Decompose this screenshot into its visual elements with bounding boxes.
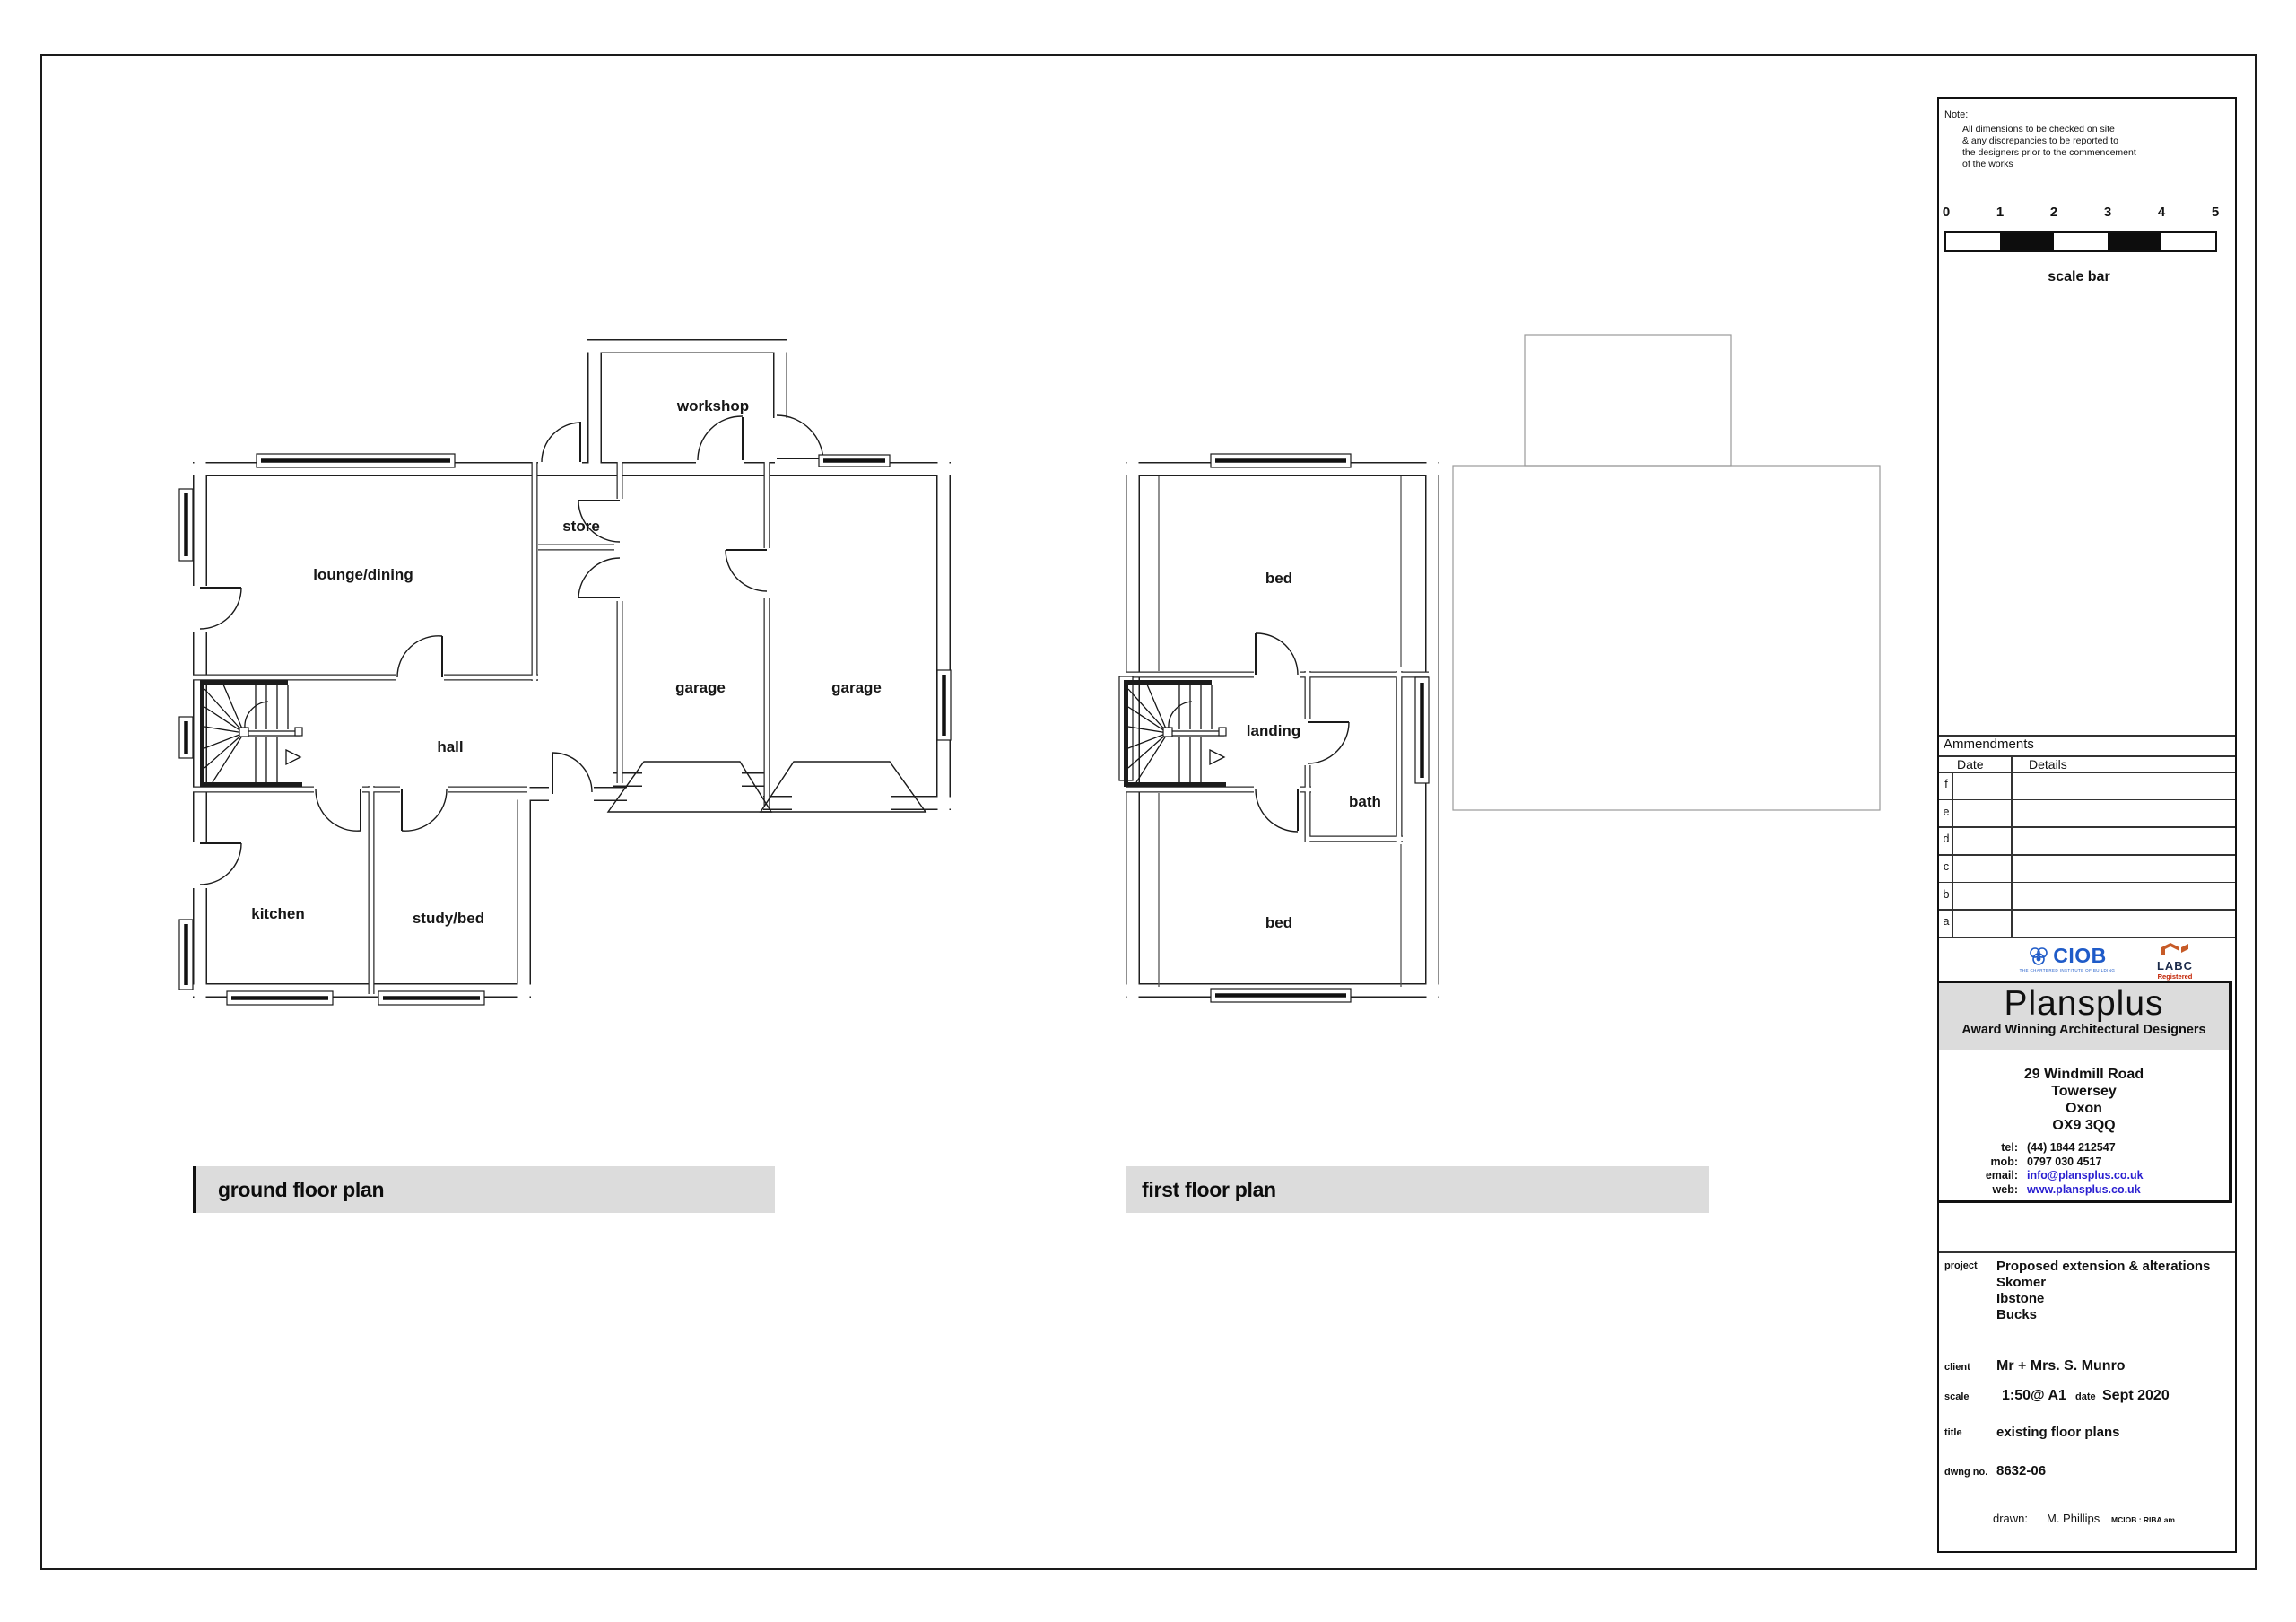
dwg-no-label: dwng no.	[1944, 1467, 1987, 1478]
drawn-credentials: MCIOB : RIBA am	[2111, 1515, 2175, 1524]
amendment-row-letter: a	[1941, 915, 1952, 928]
room-label-hall: hall	[437, 738, 463, 755]
company-address: 29 Windmill Road Towersey Oxon OX9 3QQ	[1939, 1066, 2229, 1134]
scale-value: 1:50@ A1	[2002, 1388, 2066, 1404]
client-value: Mr + Mrs. S. Munro	[1996, 1358, 2126, 1374]
amendments-details-header: Details	[2029, 757, 2067, 772]
amendment-row-letter: c	[1941, 860, 1952, 873]
tel-number: (44) 1844 212547	[2027, 1141, 2116, 1155]
client-label: client	[1944, 1362, 1970, 1373]
drawn-value: M. Phillips	[2047, 1512, 2100, 1525]
room-label-workshop: workshop	[676, 397, 749, 414]
amendments-heading: Ammendments	[1944, 737, 2034, 752]
gf-stairs	[200, 680, 302, 787]
footprint-outline-garage	[1453, 466, 1880, 810]
company-tagline: Award Winning Architectural Designers	[1939, 1023, 2229, 1037]
company-name: Plansplus	[1939, 983, 2229, 1025]
dwg-no-value: 8632-06	[1996, 1463, 2046, 1479]
gf-exterior-walls	[193, 346, 951, 998]
room-label-landing: landing	[1247, 722, 1300, 739]
project-label: project	[1944, 1260, 1978, 1271]
room-label-store: store	[562, 518, 600, 535]
title-value: existing floor plans	[1996, 1425, 2120, 1441]
first-floor-plan-title: first floor plan	[1142, 1178, 1276, 1202]
company-header: Plansplus Award Winning Architectural De…	[1939, 983, 2229, 1050]
drawn-label: drawn:	[1993, 1512, 2028, 1525]
room-label-bed-top: bed	[1265, 570, 1292, 587]
ground-floor-plan-title: ground floor plan	[218, 1178, 384, 1202]
room-label-bath: bath	[1349, 793, 1381, 810]
room-label-study-bed: study/bed	[413, 910, 484, 927]
date-value: Sept 2020	[2102, 1388, 2170, 1404]
room-label-bed-bottom: bed	[1265, 914, 1292, 931]
amendment-row-letter: b	[1941, 888, 1952, 901]
amendment-row-letter: d	[1941, 833, 1952, 845]
project-value: Proposed extension & alterations Skomer …	[1996, 1259, 2210, 1323]
website-link[interactable]: www.plansplus.co.uk	[2027, 1183, 2141, 1198]
company-box: Plansplus Award Winning Architectural De…	[1939, 981, 2232, 1203]
ground-floor-plan-title-bar: ground floor plan	[193, 1166, 775, 1213]
company-contact: tel:(44) 1844 212547 mob:0797 030 4517 e…	[1939, 1141, 2229, 1197]
first-floor-plan-title-bar: first floor plan	[1126, 1166, 1709, 1213]
amendment-row-letter: e	[1941, 806, 1952, 818]
ff-interior-walls	[1126, 671, 1429, 842]
scale-bar-segments	[1944, 231, 2217, 252]
email-link[interactable]: info@plansplus.co.uk	[2027, 1169, 2144, 1183]
mobile-number: 0797 030 4517	[2027, 1155, 2101, 1170]
room-label-garage-right: garage	[831, 679, 882, 696]
room-label-garage-left: garage	[675, 679, 726, 696]
amendment-row-letter: f	[1941, 778, 1952, 790]
labc-roof-icon	[2160, 942, 2190, 956]
ciob-logo: CIOB THE CHARTERED INSTITUTE OF BUILDING	[2009, 944, 2126, 972]
labc-logo: LABC Registered local authority building…	[2144, 942, 2206, 984]
ciob-crest-icon	[2028, 946, 2049, 967]
ground-floor-plan: lounge/dining workshop store garage gara…	[170, 323, 996, 1050]
gf-doors	[200, 415, 823, 885]
amendments-date-header: Date	[1957, 757, 1984, 772]
footprint-outline-workshop	[1525, 335, 1731, 466]
title-label: title	[1944, 1427, 1962, 1438]
title-block: Note: All dimensions to be checked on si…	[1937, 97, 2237, 1553]
date-label: date	[2075, 1391, 2096, 1402]
drawing-sheet: { "ground_floor": { "title": "ground flo…	[0, 0, 2296, 1622]
note-text: All dimensions to be checked on site & a…	[1962, 124, 2160, 170]
scale-bar-caption: scale bar	[1939, 269, 2219, 285]
note-label: Note:	[1944, 109, 1968, 120]
room-label-kitchen: kitchen	[251, 905, 305, 922]
scale-label: scale	[1944, 1391, 1970, 1402]
room-label-lounge-dining: lounge/dining	[313, 566, 413, 583]
first-floor-plan: bed landing bath bed	[1103, 323, 1892, 1050]
